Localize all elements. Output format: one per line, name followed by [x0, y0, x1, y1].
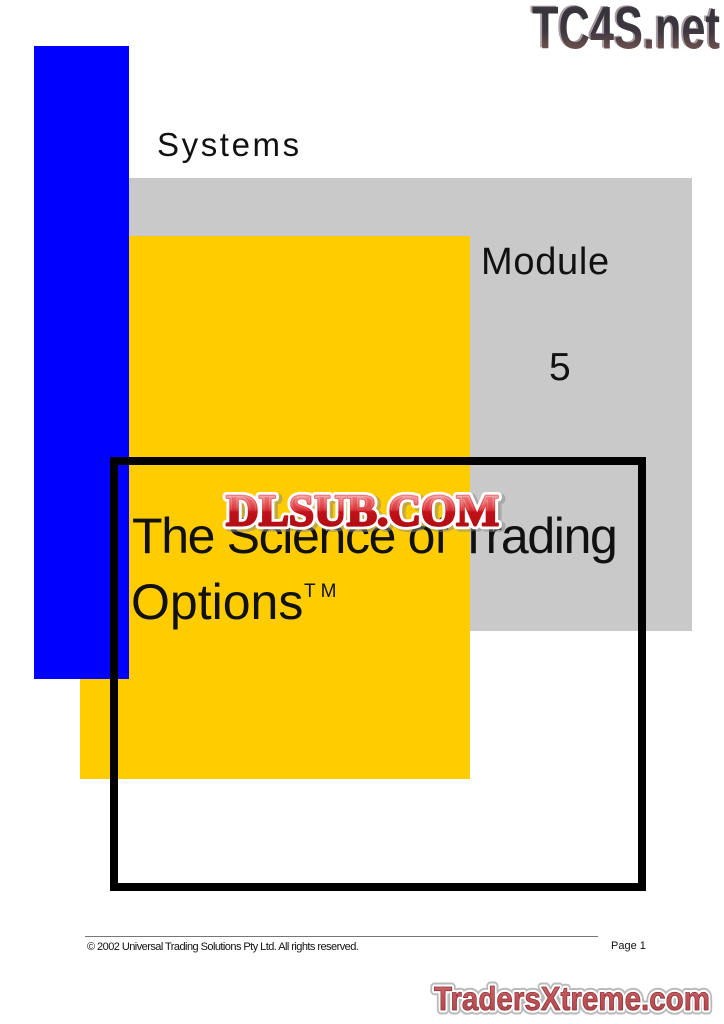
svg-text:TradersXtreme.com: TradersXtreme.com — [434, 980, 710, 1017]
svg-text:TC4S.net: TC4S.net — [532, 0, 720, 56]
svg-text:DLSUB.COM: DLSUB.COM — [226, 486, 499, 535]
